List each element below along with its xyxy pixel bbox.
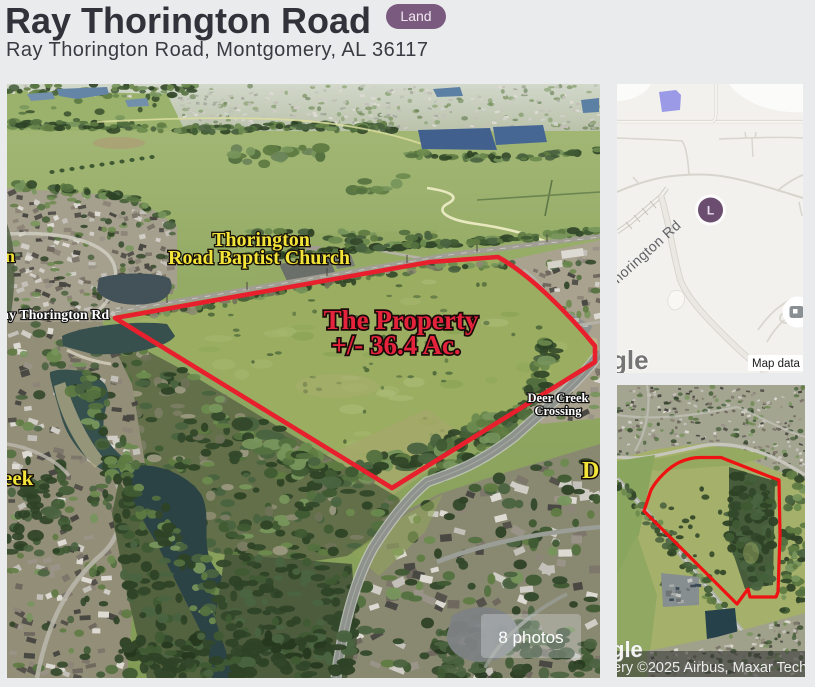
- svg-text:ay Thorington Rd: ay Thorington Rd: [7, 308, 109, 323]
- svg-text:n: n: [7, 246, 15, 266]
- svg-text:+/- 36.4 Ac.: +/- 36.4 Ac.: [331, 330, 460, 360]
- svg-text:Road Baptist Church: Road Baptist Church: [168, 247, 350, 269]
- svg-text:L: L: [707, 204, 714, 218]
- svg-text:Map data: Map data: [752, 358, 801, 370]
- svg-text:eek: eek: [7, 466, 34, 490]
- svg-text:8 photos: 8 photos: [498, 628, 563, 647]
- svg-text:D: D: [582, 458, 599, 484]
- svg-text:ery ©2025 Airbus, Maxar Techn: ery ©2025 Airbus, Maxar Techn: [617, 660, 805, 676]
- svg-text:Crossing: Crossing: [534, 404, 582, 418]
- svg-text:Deer Creek: Deer Creek: [528, 391, 589, 405]
- svg-text:gle: gle: [617, 637, 643, 662]
- svg-text:gle: gle: [617, 345, 649, 373]
